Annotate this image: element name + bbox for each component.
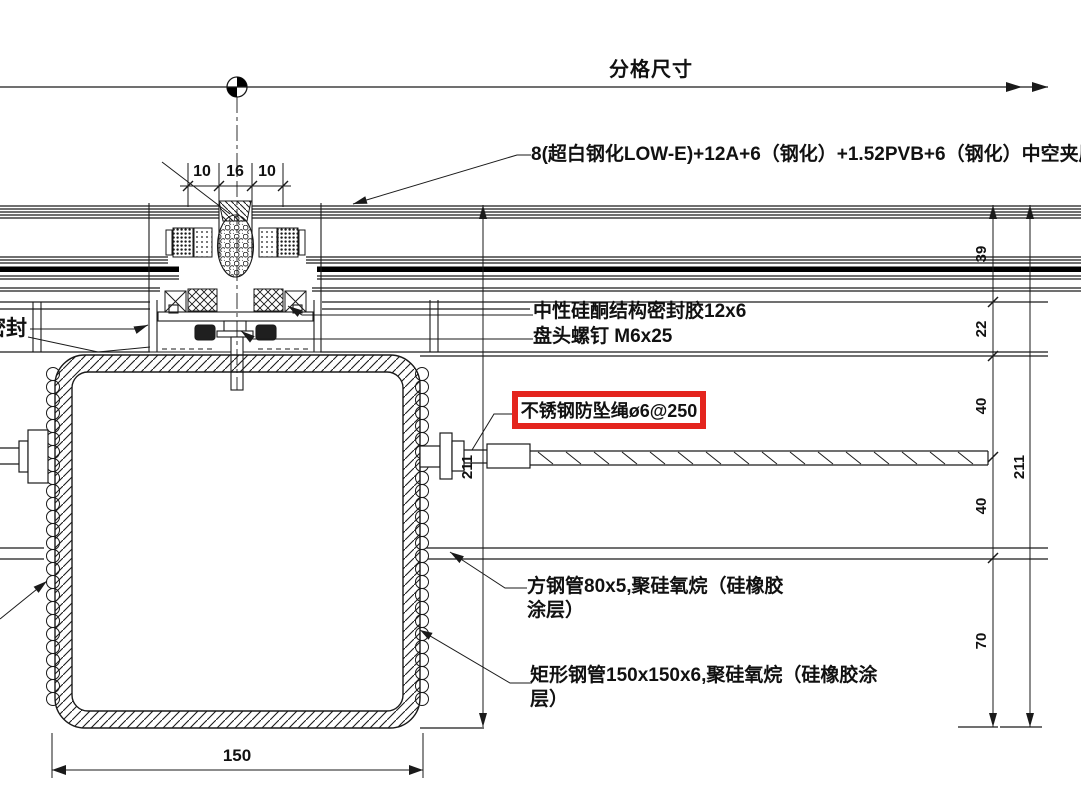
dim-40-upper: 40: [973, 384, 993, 428]
highlight-box: 不锈钢防坠绳ø6@250: [512, 391, 706, 429]
dim-16: 16: [221, 163, 249, 181]
pvb-interlayer-band: [0, 267, 179, 273]
dim-211-right: 211: [1011, 445, 1031, 489]
dim-39: 39: [973, 232, 993, 276]
setting-gasket: [195, 325, 215, 340]
dim-40-lower: 40: [973, 484, 993, 528]
safety-rope-assembly: [0, 430, 988, 483]
dim-22: 22: [973, 307, 993, 351]
double-arrow: [1006, 82, 1022, 92]
partial-seal-label: 密封: [0, 317, 27, 341]
rope-outline: [530, 451, 988, 465]
left-anchor-nut: [28, 430, 48, 483]
dim-10-left: 10: [188, 163, 216, 181]
square-tube-80x5-lines: [0, 548, 1048, 728]
gasket-row: [165, 289, 306, 312]
pvb-interlayer-band: [317, 267, 1081, 273]
glass-spec-label: 8(超白钢化LOW-E)+12A+6（钢化）+1.52PVB+6（钢化）中空夹层…: [531, 144, 1081, 166]
square-tube-label-line1: 方钢管80x5,聚硅氧烷（硅橡胶: [527, 576, 784, 598]
right-dimension-chain: [479, 205, 1034, 727]
dim-211-left: 211: [459, 445, 479, 489]
structural-sealant-label: 中性硅酮结构密封胶12x6: [533, 301, 746, 323]
pan-head-screw-label: 盘头螺钉 M6x25: [533, 326, 672, 348]
joint-sealant: [218, 201, 254, 277]
cad-drawing-viewport: 分格尺寸 8(超白钢化LOW-E)+12A+6（钢化）+1.52PVB+6（钢化…: [0, 0, 1081, 800]
safety-rope-label: 不锈钢防坠绳ø6@250: [521, 397, 698, 423]
steel-tube-section: [47, 355, 429, 728]
adapter-profile: [150, 305, 320, 390]
right-anchor-nut: [440, 433, 452, 479]
dim-150: 150: [214, 746, 260, 766]
rect-tube-label-line2: 层）: [530, 689, 568, 711]
rect-tube-label-line1: 矩形钢管150x150x6,聚硅氧烷（硅橡胶涂: [530, 665, 877, 687]
dim-10-right: 10: [253, 163, 281, 181]
rope-sleeve: [487, 444, 530, 468]
pan-head-screw-head: [224, 321, 246, 331]
grid-dimension-label: 分格尺寸: [609, 59, 693, 82]
square-tube-label-line2: 涂层）: [527, 600, 584, 622]
rope-hatch: [538, 452, 973, 464]
tube-wall-hatch: [55, 355, 420, 728]
backer-rod: [218, 215, 254, 277]
dim-70: 70: [973, 619, 993, 663]
setting-gasket: [256, 325, 276, 340]
grid-dimension-line: [0, 82, 1048, 92]
